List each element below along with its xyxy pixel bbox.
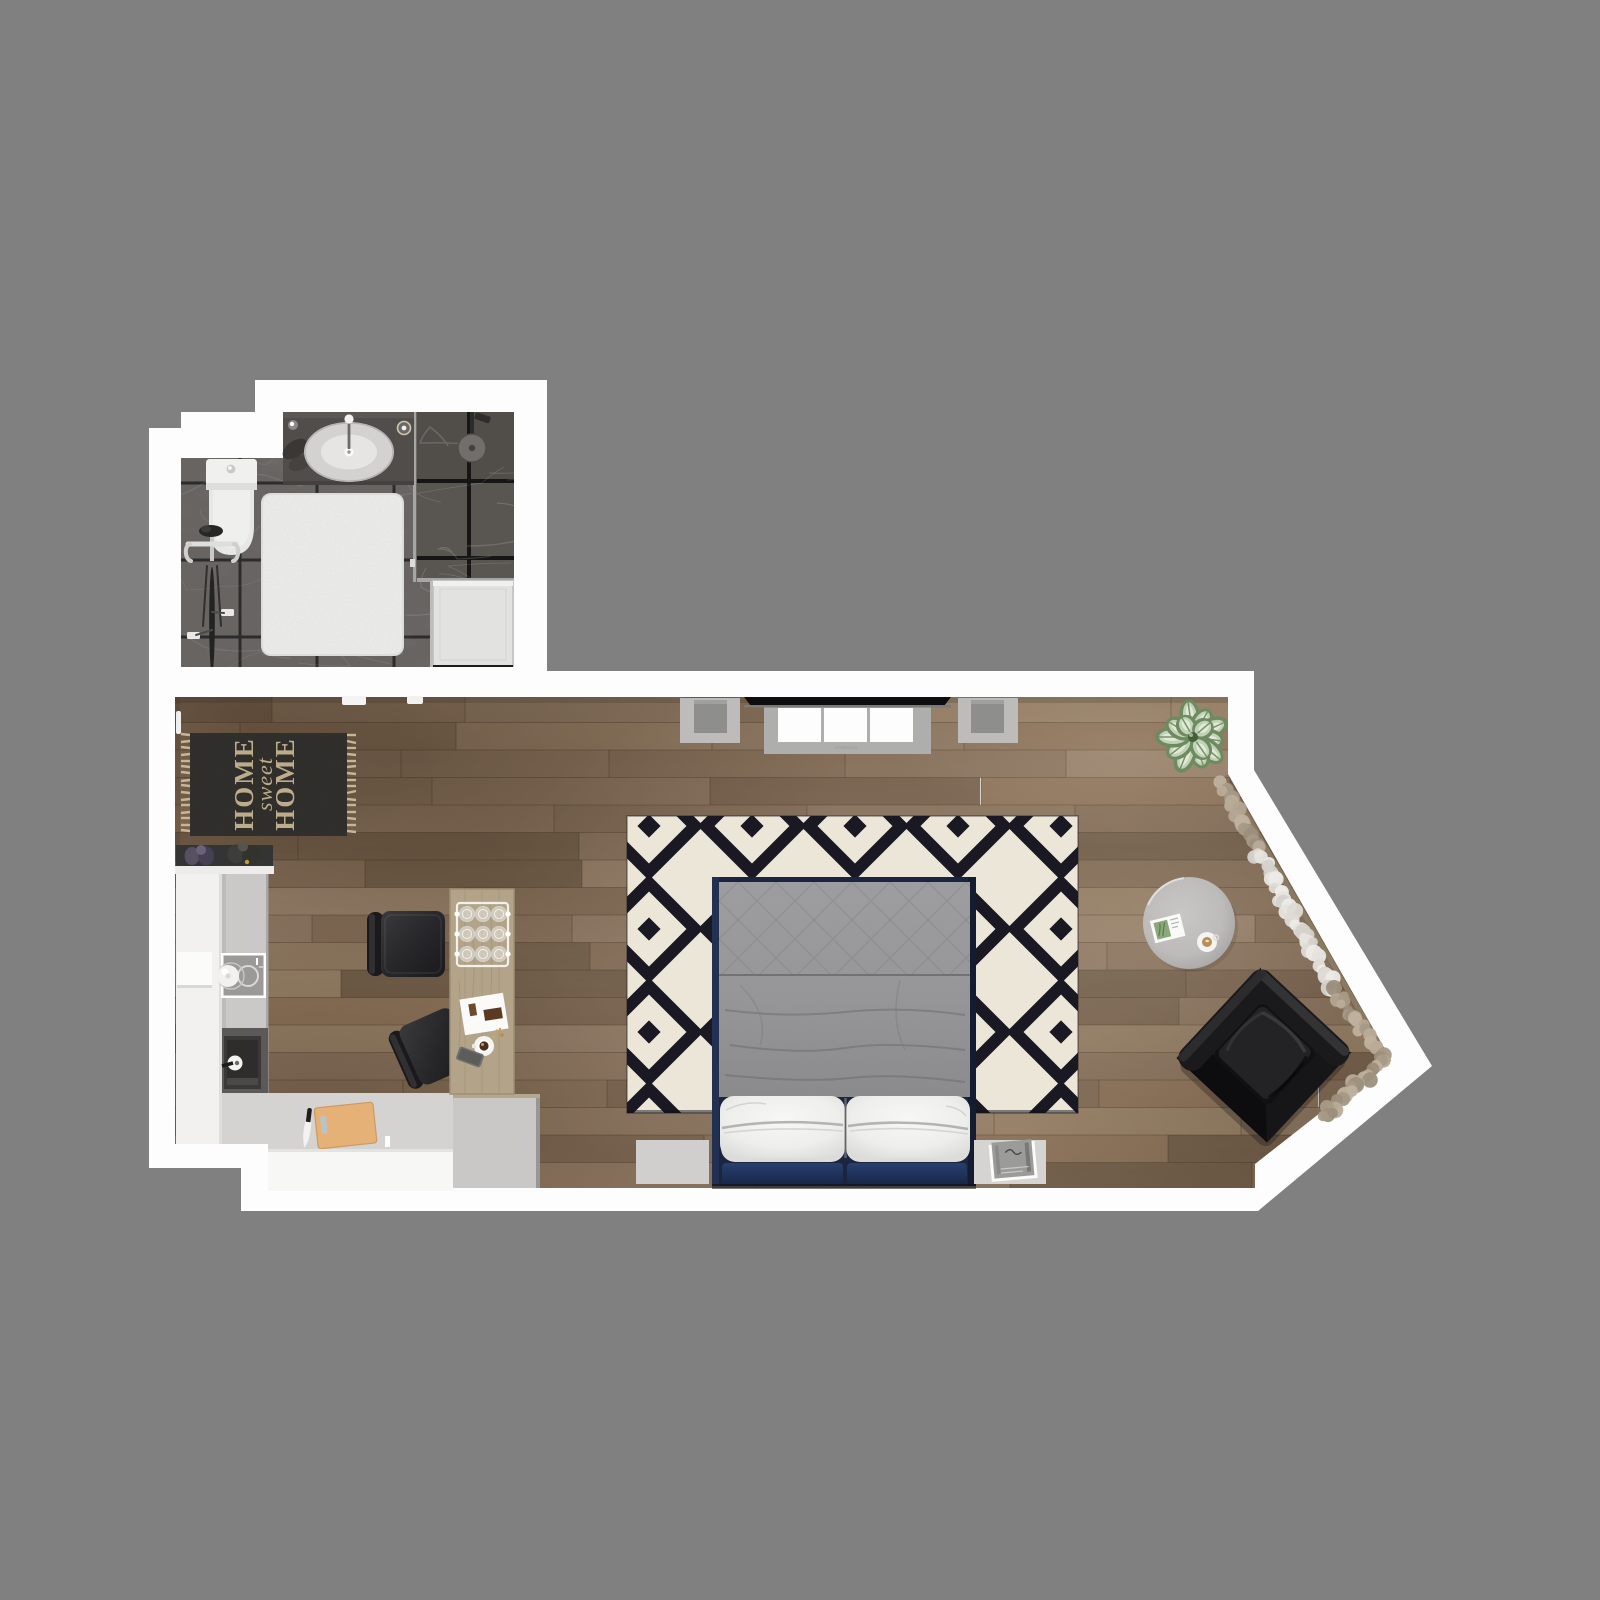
svg-text:HOME: HOME [270, 737, 300, 831]
svg-text:SAMSUNG: SAMSUNG [835, 745, 858, 750]
